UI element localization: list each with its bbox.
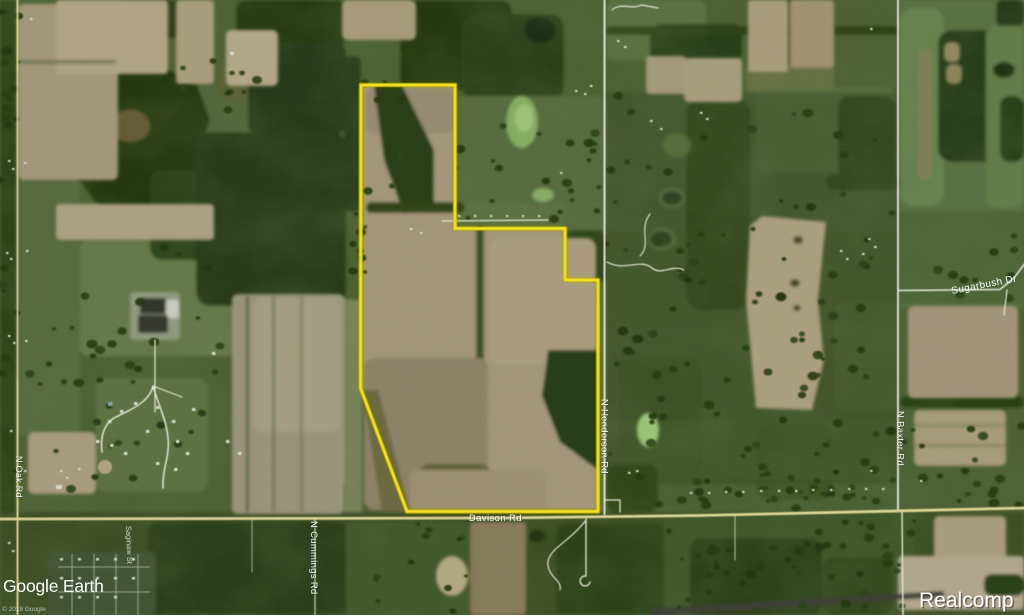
svg-text:N Henderson Rd: N Henderson Rd	[599, 399, 610, 474]
svg-text:© 2018 Google: © 2018 Google	[2, 605, 46, 613]
svg-text:Davison Rd: Davison Rd	[469, 513, 522, 524]
svg-text:N Oak Rd: N Oak Rd	[14, 456, 24, 498]
svg-text:N Baxter Rd: N Baxter Rd	[895, 411, 906, 466]
svg-text:Saginaw St: Saginaw St	[124, 526, 134, 565]
svg-text:Realcomp: Realcomp	[919, 589, 1014, 612]
svg-text:Google Earth: Google Earth	[3, 576, 104, 596]
svg-text:N Cummings Rd: N Cummings Rd	[308, 521, 319, 595]
